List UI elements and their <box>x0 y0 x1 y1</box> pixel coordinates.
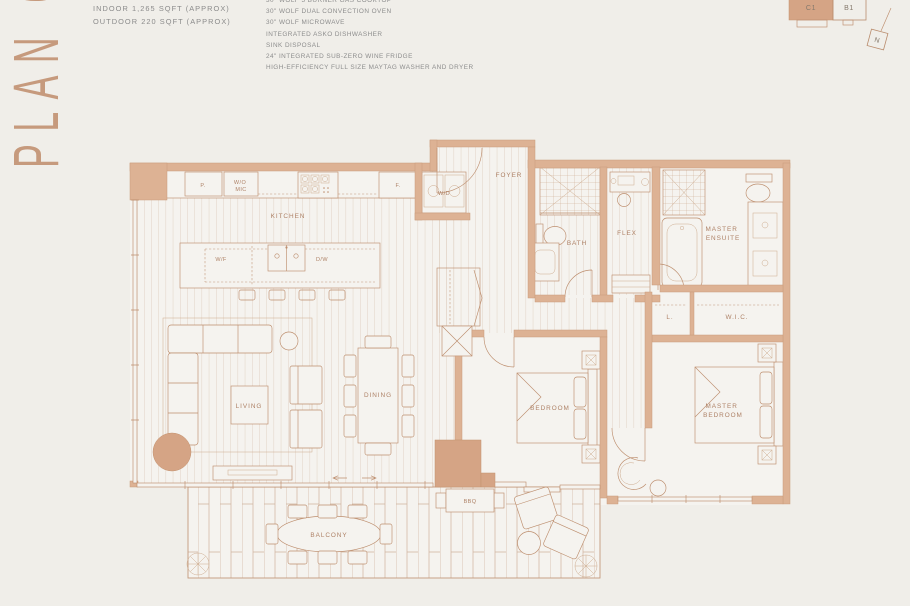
pillow <box>760 406 772 438</box>
floorplan-page: PLAN C1 INDOOR 1,265 SQFT (APPROX) OUTDO… <box>0 0 910 606</box>
outdoor-chair <box>318 505 337 518</box>
keyplan-b1-label: B1 <box>844 5 854 12</box>
dining-chair <box>344 385 356 407</box>
pillow <box>760 372 772 404</box>
outdoor-chair <box>266 524 278 544</box>
outdoor-chair <box>348 505 367 518</box>
window-band <box>618 497 752 501</box>
headboard <box>588 369 597 447</box>
dining-chair <box>402 355 414 377</box>
pillow <box>574 409 586 439</box>
outdoor-chair <box>380 524 392 544</box>
window-band <box>560 485 600 489</box>
outdoor-chair <box>288 505 307 518</box>
keyplan-tab <box>797 20 827 27</box>
nightstand-icon <box>582 351 600 369</box>
foyer-label: FOYER <box>496 172 523 179</box>
plant-icon <box>187 553 209 575</box>
armchair <box>290 366 322 404</box>
keyplan-tab <box>843 20 853 25</box>
dining-label: DINING <box>364 392 392 399</box>
nightstand-icon <box>758 344 776 362</box>
dining-chair <box>365 443 391 455</box>
outdoor-chair <box>288 551 307 564</box>
dining-chair <box>344 415 356 437</box>
sliding-door-panel <box>490 482 526 487</box>
pantry-label: P. <box>200 183 205 189</box>
outdoor-chair <box>318 551 337 564</box>
window-band <box>133 200 137 483</box>
dining-chair <box>402 385 414 407</box>
dining-chair <box>365 336 391 348</box>
side-table <box>650 480 666 496</box>
double-vanity <box>748 202 783 287</box>
wic-label: W.I.C. <box>725 314 748 321</box>
floor-plan-drawing: C1 B1 N <box>0 0 910 606</box>
pillow <box>574 377 586 407</box>
wine-fridge-label: W/F <box>215 257 227 263</box>
dining-chair <box>402 415 414 437</box>
ensuite-toilet-icon <box>746 174 772 202</box>
keyplan-c1-label: C1 <box>806 5 816 12</box>
shelf <box>612 275 650 293</box>
key-plan: C1 B1 N <box>789 0 891 50</box>
living-label: LIVING <box>236 403 263 410</box>
wall-oven-label: W/O MIC <box>234 180 248 193</box>
sink-icon <box>268 245 305 271</box>
kitchen-label: KITCHEN <box>271 213 306 220</box>
bbq-label: BBQ <box>464 499 477 505</box>
balcony-label: BALCONY <box>310 532 347 539</box>
cooktop-icon <box>298 172 338 198</box>
accent-circle <box>153 433 191 471</box>
dining-chair <box>344 355 356 377</box>
armchair <box>290 410 322 448</box>
fridge-label: F. <box>395 183 400 189</box>
north-arrow-icon: N <box>867 8 891 50</box>
flex-label: FLEX <box>617 230 637 237</box>
structural-column <box>442 326 472 356</box>
washer-dryer-label: W/D <box>438 191 450 197</box>
window-band <box>137 483 433 487</box>
plant-icon <box>575 555 597 577</box>
wall-pier <box>435 440 481 487</box>
nightstand-icon <box>758 446 776 464</box>
bedroom-label: BEDROOM <box>530 405 570 412</box>
outdoor-chair <box>348 551 367 564</box>
linen-label: L. <box>666 314 673 321</box>
side-table <box>280 332 298 350</box>
bath-label: BATH <box>567 240 587 247</box>
headboard <box>774 362 783 446</box>
bathtub-icon <box>662 218 702 287</box>
nightstand-icon <box>582 445 600 463</box>
dishwasher-label: D/W <box>316 257 328 263</box>
tv-console <box>213 466 292 480</box>
outdoor-side-table <box>518 532 541 555</box>
